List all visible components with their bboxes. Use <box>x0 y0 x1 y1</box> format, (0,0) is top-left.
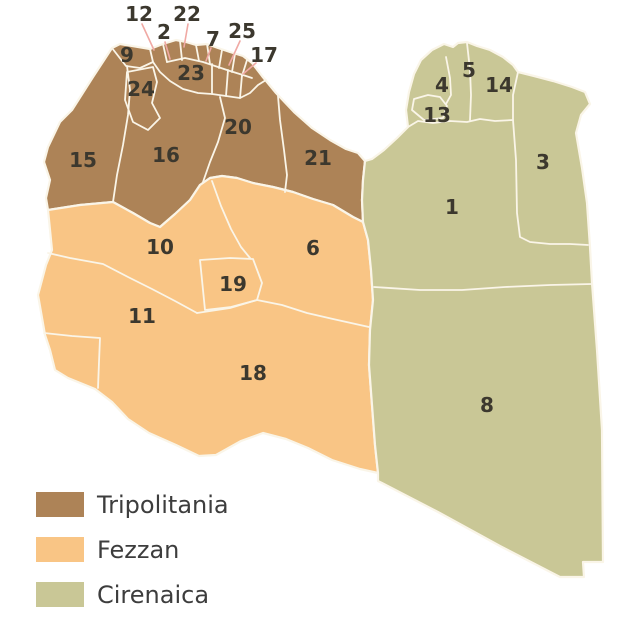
district-label-3: 3 <box>536 150 550 174</box>
legend-item: Fezzan <box>36 537 229 562</box>
district-label-7: 7 <box>206 27 220 51</box>
district-label-11: 11 <box>128 304 156 328</box>
district-label-13: 13 <box>423 103 451 127</box>
legend-swatch <box>36 582 84 607</box>
legend-swatch <box>36 537 84 562</box>
district-label-24: 24 <box>127 77 155 101</box>
district-label-5: 5 <box>462 58 476 82</box>
district-label-18: 18 <box>239 361 267 385</box>
district-label-23: 23 <box>177 61 205 85</box>
district-label-4: 4 <box>435 73 449 97</box>
district-label-8: 8 <box>480 393 494 417</box>
district-label-25: 25 <box>228 19 256 43</box>
legend-label: Fezzan <box>97 538 179 562</box>
legend-swatch <box>36 492 84 517</box>
leader-line-12 <box>142 24 154 50</box>
district-label-12: 12 <box>125 2 153 26</box>
district-label-15: 15 <box>69 148 97 172</box>
district-label-6: 6 <box>306 236 320 260</box>
district-label-10: 10 <box>146 235 174 259</box>
district-label-20: 20 <box>224 115 252 139</box>
legend-label: Cirenaica <box>97 583 209 607</box>
region-fezzan <box>38 176 378 473</box>
district-label-16: 16 <box>152 143 180 167</box>
region-cirenaica <box>362 42 603 577</box>
legend-item: Tripolitania <box>36 492 229 517</box>
legend: Tripolitania Fezzan Cirenaica <box>36 492 229 627</box>
district-label-19: 19 <box>219 272 247 296</box>
district-label-22: 22 <box>173 2 201 26</box>
legend-label: Tripolitania <box>97 493 229 517</box>
legend-item: Cirenaica <box>36 582 229 607</box>
district-label-2: 2 <box>157 20 171 44</box>
district-label-17: 17 <box>250 43 278 67</box>
district-label-21: 21 <box>304 146 332 170</box>
district-label-1: 1 <box>445 195 459 219</box>
district-label-9: 9 <box>120 43 134 67</box>
district-label-14: 14 <box>485 73 513 97</box>
